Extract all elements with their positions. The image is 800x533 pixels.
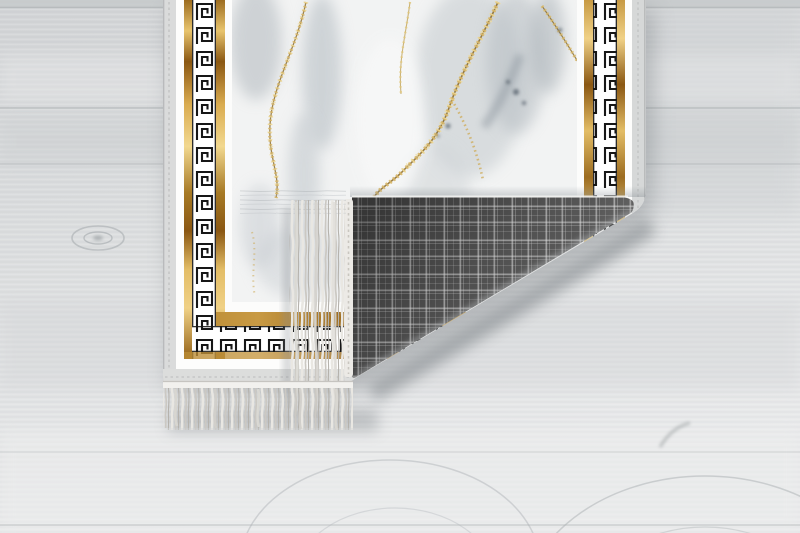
gold-band-outer [184, 0, 192, 385]
fringe-clump [336, 389, 337, 430]
crease-shadow [350, 186, 646, 197]
fringe-clump [258, 389, 259, 427]
floor-streak [0, 430, 800, 533]
rug-product-photo [0, 0, 800, 533]
fringe-clump [175, 389, 177, 426]
white-band [176, 0, 184, 385]
fringe-clump [215, 389, 216, 428]
screenshot-canvas [0, 0, 800, 533]
fringe-clump [300, 389, 301, 429]
bottom-fringe [163, 381, 353, 430]
